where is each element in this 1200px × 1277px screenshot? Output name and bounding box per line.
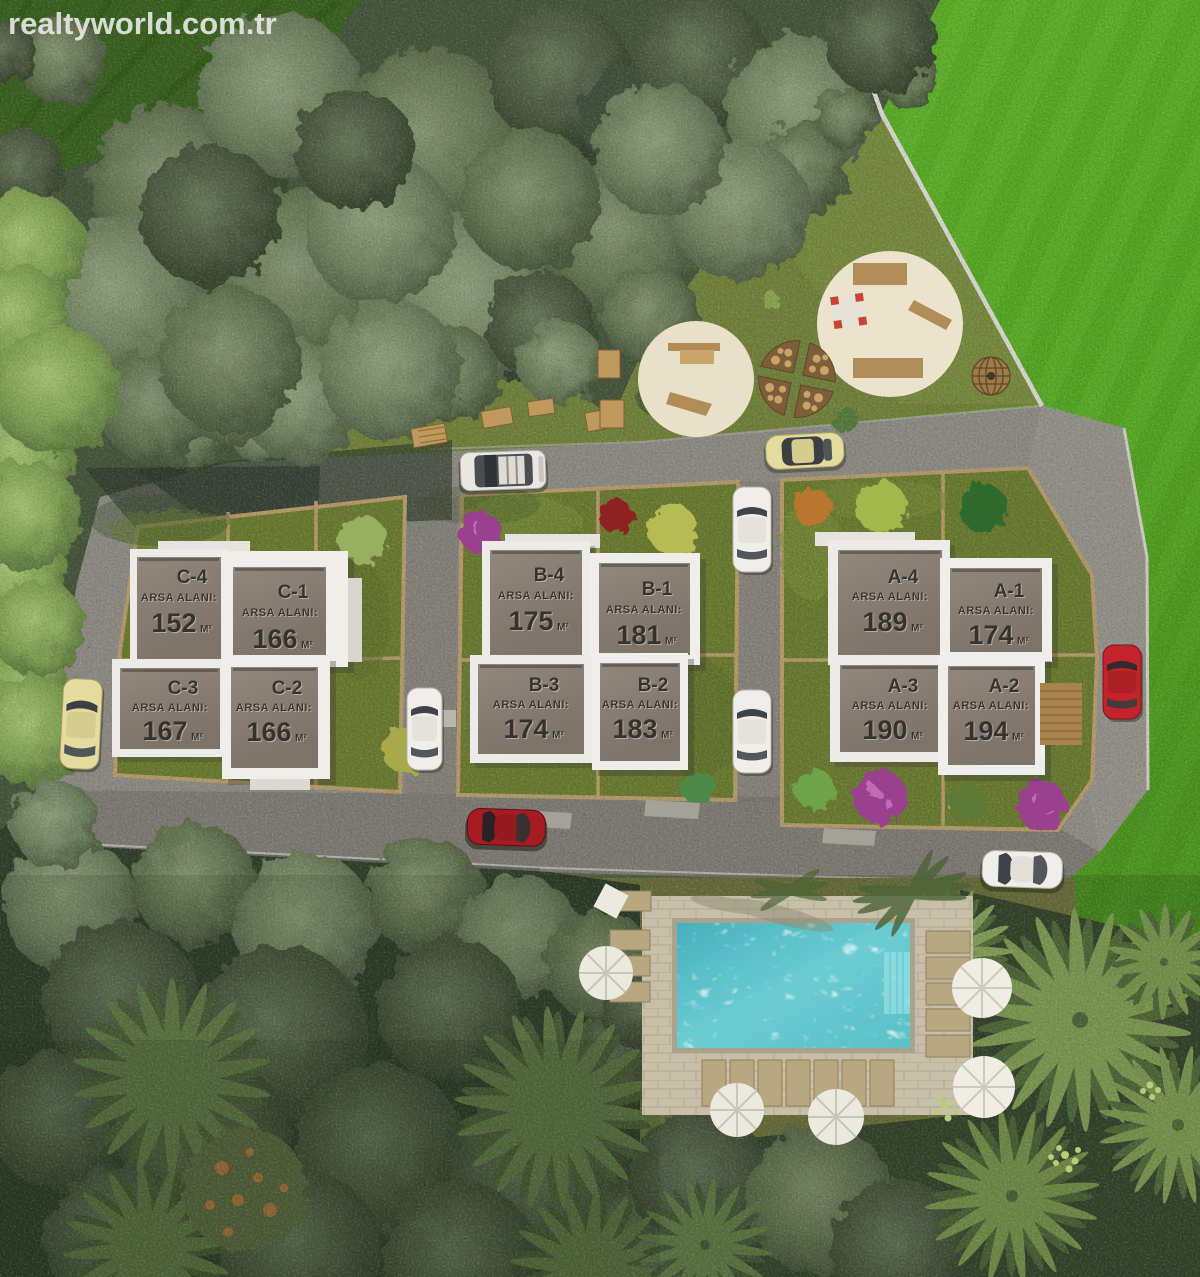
svg-text:realtyworld.com.tr: realtyworld.com.tr bbox=[8, 6, 277, 41]
svg-text:ARSA ALANI:: ARSA ALANI: bbox=[236, 702, 312, 714]
svg-text:M²: M² bbox=[665, 636, 677, 647]
svg-text:ARSA ALANI:: ARSA ALANI: bbox=[132, 702, 208, 714]
svg-text:B-2: B-2 bbox=[638, 675, 669, 696]
svg-text:B-4: B-4 bbox=[534, 565, 565, 586]
svg-text:181: 181 bbox=[616, 620, 661, 650]
svg-text:A-1: A-1 bbox=[994, 581, 1025, 602]
svg-text:M²: M² bbox=[295, 733, 307, 744]
svg-text:M²: M² bbox=[1012, 732, 1024, 743]
svg-text:A-3: A-3 bbox=[888, 676, 919, 697]
svg-text:194: 194 bbox=[963, 716, 1008, 746]
svg-text:M²: M² bbox=[552, 730, 564, 741]
svg-text:ARSA ALANI:: ARSA ALANI: bbox=[606, 604, 682, 616]
svg-text:M²: M² bbox=[911, 731, 923, 742]
svg-text:189: 189 bbox=[862, 607, 907, 637]
svg-text:174: 174 bbox=[503, 714, 548, 744]
svg-text:ARSA ALANI:: ARSA ALANI: bbox=[602, 699, 678, 711]
svg-text:M²: M² bbox=[911, 623, 923, 634]
svg-text:C-2: C-2 bbox=[272, 678, 303, 699]
svg-text:152: 152 bbox=[151, 608, 196, 638]
svg-text:167: 167 bbox=[142, 716, 187, 746]
svg-text:A-4: A-4 bbox=[888, 567, 919, 588]
svg-text:M²: M² bbox=[661, 730, 673, 741]
svg-text:ARSA ALANI:: ARSA ALANI: bbox=[852, 591, 928, 603]
svg-text:ARSA ALANI:: ARSA ALANI: bbox=[852, 700, 928, 712]
svg-text:175: 175 bbox=[508, 606, 553, 636]
svg-text:166: 166 bbox=[246, 717, 291, 747]
svg-text:B-3: B-3 bbox=[529, 675, 560, 696]
svg-text:ARSA ALANI:: ARSA ALANI: bbox=[953, 700, 1029, 712]
svg-text:B-1: B-1 bbox=[642, 579, 673, 600]
svg-text:M²: M² bbox=[200, 624, 212, 635]
svg-text:ARSA ALANI:: ARSA ALANI: bbox=[493, 699, 569, 711]
svg-text:166: 166 bbox=[252, 624, 297, 654]
svg-text:ARSA ALANI:: ARSA ALANI: bbox=[498, 590, 574, 602]
svg-text:C-1: C-1 bbox=[278, 582, 309, 603]
svg-text:M²: M² bbox=[557, 622, 569, 633]
svg-text:C-3: C-3 bbox=[168, 678, 199, 699]
svg-text:183: 183 bbox=[612, 714, 657, 744]
svg-text:ARSA ALANI:: ARSA ALANI: bbox=[958, 605, 1034, 617]
svg-text:M²: M² bbox=[191, 732, 203, 743]
svg-text:ARSA ALANI:: ARSA ALANI: bbox=[141, 592, 217, 604]
svg-text:A-2: A-2 bbox=[989, 676, 1020, 697]
svg-text:174: 174 bbox=[968, 620, 1013, 650]
svg-text:ARSA ALANI:: ARSA ALANI: bbox=[242, 607, 318, 619]
svg-text:M²: M² bbox=[301, 640, 313, 651]
svg-text:C-4: C-4 bbox=[177, 567, 208, 588]
svg-text:M²: M² bbox=[1017, 636, 1029, 647]
svg-text:190: 190 bbox=[862, 715, 907, 745]
